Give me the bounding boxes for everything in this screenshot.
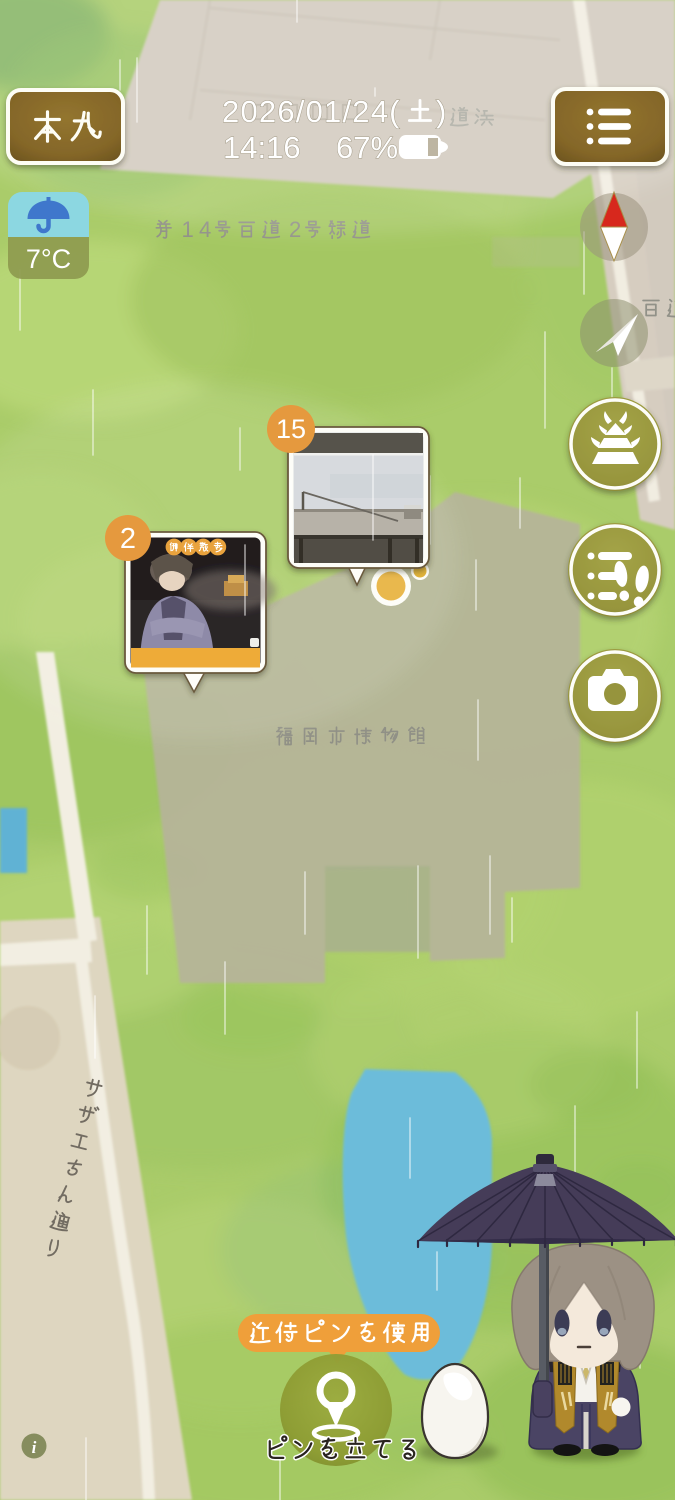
svg-text:): ) bbox=[436, 94, 446, 129]
svg-text:2: 2 bbox=[120, 523, 136, 555]
svg-text:2026/01/24(: 2026/01/24( bbox=[222, 94, 401, 129]
svg-text:7°C: 7°C bbox=[26, 244, 71, 274]
svg-text:14:16: 14:16 bbox=[223, 130, 301, 165]
svg-text:15: 15 bbox=[276, 414, 306, 444]
svg-text:67%: 67% bbox=[336, 130, 398, 165]
svg-text:i: i bbox=[32, 1438, 37, 1457]
